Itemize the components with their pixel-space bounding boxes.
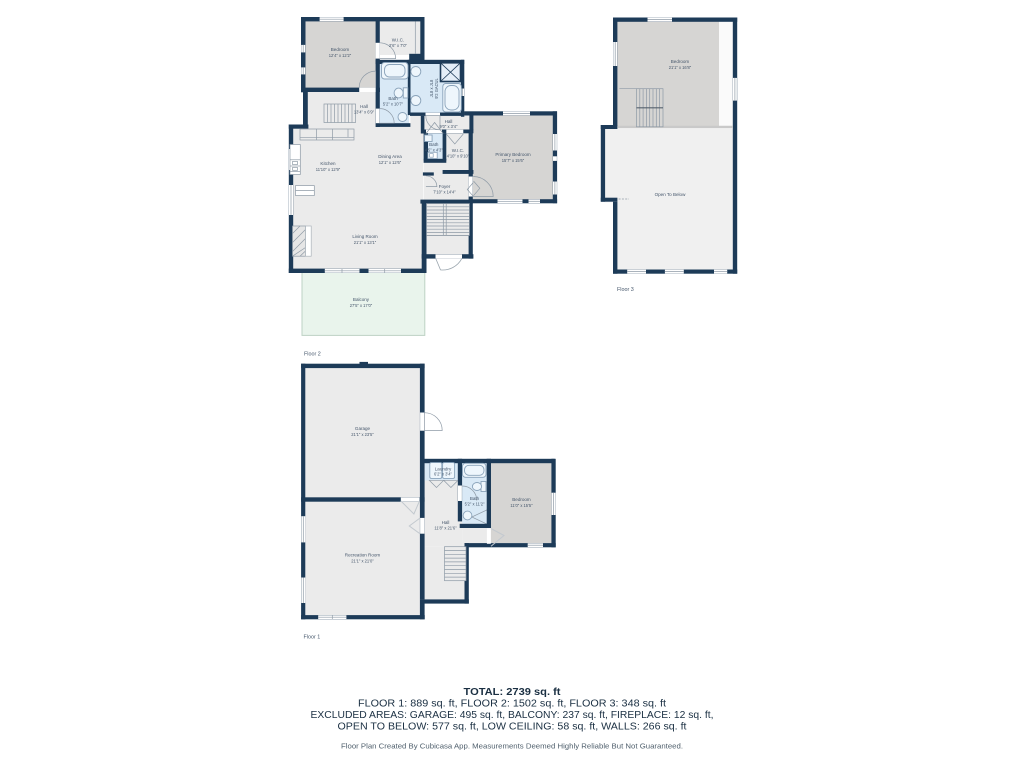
- svg-text:W.I.C.: W.I.C.: [452, 148, 464, 153]
- svg-text:4'10" x 9'10": 4'10" x 9'10": [447, 154, 470, 159]
- svg-text:13'4" x 6'9": 13'4" x 6'9": [354, 110, 375, 115]
- svg-text:15'7" x 15'6": 15'7" x 15'6": [502, 158, 525, 163]
- svg-text:Garage: Garage: [355, 426, 371, 431]
- svg-text:12'4" x 12'2": 12'4" x 12'2": [329, 53, 352, 58]
- svg-text:Hall: Hall: [442, 520, 450, 525]
- svg-text:Foyer: Foyer: [439, 184, 451, 189]
- svg-text:21'1" x 21'0": 21'1" x 21'0": [351, 559, 374, 564]
- svg-text:Floor 3: Floor 3: [617, 287, 634, 293]
- svg-text:Primary Bedroom: Primary Bedroom: [495, 152, 531, 157]
- svg-text:Kitchen: Kitchen: [320, 161, 336, 166]
- svg-text:9'0" x 3'4": 9'0" x 3'4": [440, 124, 458, 129]
- svg-text:Recreation Room: Recreation Room: [345, 553, 381, 558]
- svg-text:EXCLUDED AREAS: GARAGE: 495 sq: EXCLUDED AREAS: GARAGE: 495 sq. ft, BALC…: [311, 710, 714, 721]
- svg-text:5'2" x 10'7": 5'2" x 10'7": [383, 102, 404, 107]
- svg-text:27'5" x 17'0": 27'5" x 17'0": [350, 303, 373, 308]
- svg-text:Living Room: Living Room: [352, 234, 377, 239]
- svg-text:TOTAL: 2739 sq. ft: TOTAL: 2739 sq. ft: [464, 687, 562, 698]
- svg-text:W.I.C.: W.I.C.: [392, 38, 404, 43]
- svg-text:Dining Area: Dining Area: [378, 154, 402, 159]
- svg-text:Floor Plan Created By Cubicasa: Floor Plan Created By Cubicasa App. Meas…: [341, 742, 683, 751]
- svg-text:21'1" x 13'1": 21'1" x 13'1": [354, 240, 377, 245]
- svg-text:21'1" x 16'8": 21'1" x 16'8": [669, 65, 692, 70]
- svg-text:2'6" x 7'0": 2'6" x 7'0": [389, 43, 407, 48]
- svg-text:6'2" x 3'4": 6'2" x 3'4": [434, 472, 452, 477]
- svg-text:Balcony: Balcony: [353, 297, 370, 302]
- svg-text:OPEN TO BELOW: 577 sq. ft, LOW: OPEN TO BELOW: 577 sq. ft, LOW CEILING: …: [338, 721, 687, 732]
- svg-text:11'10" x 12'9": 11'10" x 12'9": [316, 167, 341, 172]
- svg-text:Floor 2: Floor 2: [304, 352, 321, 358]
- svg-text:Bath: Bath: [429, 142, 439, 147]
- svg-text:Floor 1: Floor 1: [304, 635, 321, 641]
- svg-text:Bedroom: Bedroom: [512, 497, 531, 502]
- svg-text:7'10" x 14'4": 7'10" x 14'4": [433, 190, 456, 195]
- svg-text:Bath: Bath: [470, 496, 480, 501]
- svg-text:4'5" x 4'3": 4'5" x 4'3": [425, 148, 443, 153]
- svg-text:Bedroom: Bedroom: [331, 47, 350, 52]
- svg-text:21'1" x 23'5": 21'1" x 23'5": [351, 432, 374, 437]
- svg-text:Bedroom: Bedroom: [671, 59, 690, 64]
- svg-text:FLOOR 1: 889 sq. ft, FLOOR 2:: FLOOR 1: 889 sq. ft, FLOOR 2: 1502 sq. f…: [358, 698, 666, 709]
- svg-text:11'8" x 21'6": 11'8" x 21'6": [434, 526, 457, 531]
- svg-text:Open To Below: Open To Below: [655, 192, 686, 197]
- svg-text:9'2 GACUL: 9'2 GACUL: [434, 77, 439, 98]
- svg-text:11'0" x 15'5": 11'0" x 15'5": [510, 503, 533, 508]
- svg-text:12'1" x 12'6": 12'1" x 12'6": [379, 160, 402, 165]
- svg-text:5'2" x 11'2": 5'2" x 11'2": [465, 502, 485, 507]
- svg-text:Bath: Bath: [388, 96, 398, 101]
- svg-text:Hall: Hall: [360, 104, 368, 109]
